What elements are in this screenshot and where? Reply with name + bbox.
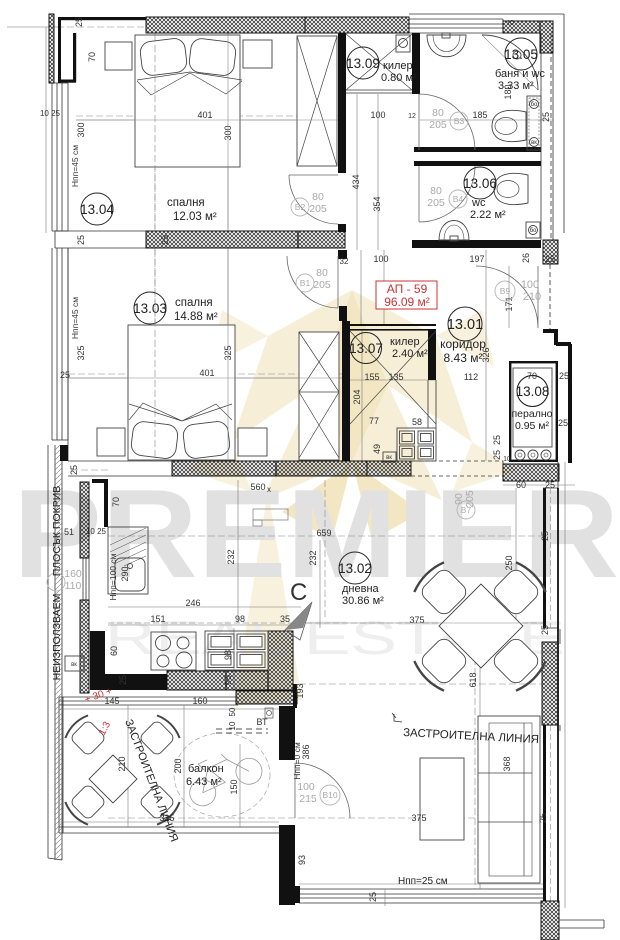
svg-text:килер: килер [383, 60, 413, 72]
svg-text:171: 171 [504, 296, 514, 311]
svg-text:160: 160 [192, 696, 207, 706]
svg-text:325: 325 [76, 345, 86, 360]
svg-text:25: 25 [492, 450, 502, 460]
svg-text:килер: килер [390, 336, 420, 348]
svg-text:375: 375 [411, 813, 426, 823]
svg-text:58: 58 [412, 417, 422, 427]
svg-text:13.07: 13.07 [349, 341, 383, 356]
svg-text:60: 60 [109, 646, 119, 656]
svg-text:B1: B1 [300, 278, 311, 288]
svg-text:25: 25 [76, 235, 86, 245]
svg-text:151: 151 [150, 614, 165, 624]
svg-text:13.08: 13.08 [516, 384, 550, 399]
svg-text:401: 401 [197, 110, 212, 120]
svg-text:Нпп=0 см: Нпп=0 см [292, 742, 302, 780]
svg-text:32: 32 [340, 257, 349, 266]
svg-text:НЕИЗПОЛЗВАЕМ: НЕИЗПОЛЗВАЕМ [51, 594, 63, 681]
svg-text:25: 25 [160, 235, 170, 245]
svg-text:10 25: 10 25 [40, 109, 61, 118]
svg-text:балкон: балкон [188, 763, 224, 775]
svg-text:13.06: 13.06 [463, 176, 497, 191]
svg-text:13.09: 13.09 [346, 56, 380, 71]
svg-text:25: 25 [118, 675, 128, 685]
svg-text:98: 98 [223, 650, 233, 660]
svg-text:Нпп=100 см: Нпп=100 см [108, 553, 118, 600]
svg-text:спалня: спалня [175, 297, 213, 309]
svg-text:185: 185 [472, 110, 487, 120]
svg-text:B10: B10 [322, 790, 337, 800]
svg-text:25: 25 [540, 625, 550, 635]
svg-text:13.04: 13.04 [80, 202, 114, 217]
svg-text:215: 215 [299, 793, 317, 805]
svg-text:дневна: дневна [342, 583, 380, 595]
svg-text:B7: B7 [461, 505, 472, 515]
svg-text:12.03 м²: 12.03 м² [173, 211, 217, 223]
svg-text:30.86 м²: 30.86 м² [342, 595, 384, 607]
svg-text:110: 110 [65, 580, 82, 592]
svg-text:326: 326 [481, 347, 491, 362]
svg-text:10 25: 10 25 [86, 527, 107, 536]
svg-text:60: 60 [516, 480, 526, 490]
svg-text:205: 205 [427, 197, 445, 209]
svg-text:25: 25 [541, 112, 551, 122]
svg-text:13.02: 13.02 [338, 561, 372, 576]
svg-text:368: 368 [502, 756, 512, 771]
svg-text:ВТ: ВТ [257, 717, 268, 727]
svg-text:B3: B3 [454, 116, 465, 126]
svg-text:Нпп=45 см: Нпп=45 см [70, 145, 80, 187]
svg-text:10: 10 [503, 456, 511, 463]
svg-text:100: 100 [521, 279, 539, 291]
svg-text:300: 300 [76, 122, 86, 137]
svg-text:93: 93 [297, 855, 307, 865]
svg-text:70: 70 [87, 52, 97, 62]
svg-text:375: 375 [409, 615, 424, 625]
svg-text:B4: B4 [453, 194, 464, 204]
svg-text:80: 80 [312, 191, 324, 203]
svg-text:205: 205 [309, 203, 327, 215]
svg-text:2.22 м²: 2.22 м² [470, 209, 506, 221]
svg-text:354: 354 [372, 196, 382, 211]
svg-text:205: 205 [429, 119, 447, 131]
svg-text:баня и wc: баня и wc [495, 68, 545, 80]
svg-text:25: 25 [368, 892, 378, 902]
svg-text:2.40 м²: 2.40 м² [392, 348, 428, 360]
svg-text:290: 290 [120, 566, 130, 581]
svg-text:wc: wc [471, 197, 486, 209]
svg-text:80: 80 [432, 107, 444, 119]
svg-text:618: 618 [468, 672, 478, 687]
svg-text:25: 25 [559, 371, 569, 381]
svg-text:12: 12 [408, 113, 416, 120]
svg-text:25: 25 [69, 465, 79, 475]
svg-text:бо: бо [530, 228, 537, 234]
svg-text:100: 100 [297, 781, 315, 793]
svg-text:659: 659 [316, 528, 331, 538]
svg-text:560: 560 [250, 482, 265, 492]
svg-text:232: 232 [308, 550, 318, 565]
svg-text:100: 100 [373, 254, 388, 264]
svg-text:35: 35 [280, 614, 290, 624]
svg-text:перално: перално [512, 408, 553, 420]
svg-text:С: С [290, 579, 307, 606]
svg-text:25: 25 [492, 435, 502, 445]
svg-text:26: 26 [521, 253, 531, 263]
svg-text:25: 25 [558, 418, 568, 428]
svg-text:80: 80 [430, 185, 442, 197]
svg-text:25: 25 [540, 531, 550, 541]
svg-text:112: 112 [464, 372, 478, 382]
svg-text:155: 155 [364, 372, 379, 382]
svg-text:250: 250 [504, 555, 514, 570]
svg-text:13.05: 13.05 [504, 47, 538, 62]
svg-text:0.80 м²: 0.80 м² [381, 72, 417, 84]
svg-text:197: 197 [469, 254, 484, 264]
svg-text:коридор: коридор [440, 337, 486, 351]
svg-text:14.88 м²: 14.88 м² [174, 311, 218, 323]
svg-text:98: 98 [235, 614, 245, 624]
svg-text:204: 204 [352, 389, 362, 404]
svg-text:8.43 м²: 8.43 м² [444, 351, 483, 365]
svg-text:193: 193 [295, 683, 305, 698]
svg-text:Нпп=45 см: Нпп=45 см [70, 297, 80, 339]
svg-text:13.01: 13.01 [447, 317, 483, 333]
svg-text:51: 51 [64, 527, 74, 537]
svg-text:спалня: спалня [167, 197, 205, 209]
svg-text:160: 160 [64, 568, 82, 580]
svg-text:вк: вк [531, 140, 537, 146]
svg-text:6.43 м²: 6.43 м² [186, 776, 222, 788]
svg-text:49: 49 [372, 444, 382, 454]
svg-text:25: 25 [60, 370, 70, 380]
svg-text:13.03: 13.03 [133, 301, 167, 316]
svg-text:232: 232 [226, 549, 236, 564]
svg-text:бо: бо [531, 102, 538, 108]
svg-text:x: x [267, 485, 271, 494]
svg-text:180: 180 [503, 84, 513, 99]
svg-text:70: 70 [527, 371, 537, 381]
svg-text:25: 25 [545, 254, 555, 264]
svg-text:246: 246 [185, 598, 200, 608]
svg-text:70: 70 [111, 497, 121, 507]
svg-text:210: 210 [117, 756, 127, 771]
svg-text:B9: B9 [500, 286, 511, 296]
svg-text:25: 25 [538, 813, 548, 823]
svg-text:200: 200 [173, 758, 183, 773]
svg-text:25: 25 [74, 17, 84, 27]
svg-text:АП - 59: АП - 59 [387, 282, 428, 296]
svg-text:210: 210 [523, 291, 541, 303]
svg-text:135: 135 [388, 372, 403, 382]
svg-text:50: 50 [228, 707, 237, 716]
svg-text:95: 95 [223, 675, 233, 685]
svg-text:386: 386 [301, 744, 311, 759]
svg-text:вк: вк [71, 662, 77, 668]
svg-text:80: 80 [316, 267, 328, 279]
svg-text:401: 401 [199, 368, 214, 378]
svg-text:150: 150 [229, 779, 239, 794]
svg-text:77: 77 [369, 416, 379, 426]
svg-text:10: 10 [506, 20, 514, 27]
svg-text:B2: B2 [295, 202, 306, 212]
svg-text:Нпп=25 см: Нпп=25 см [398, 876, 448, 887]
svg-text:вк: вк [386, 455, 392, 461]
svg-text:100: 100 [370, 110, 385, 120]
svg-text:25: 25 [545, 480, 555, 490]
svg-text:ПЛОСЪК ПОКРИВ: ПЛОСЪК ПОКРИВ [51, 486, 63, 577]
svg-text:434: 434 [351, 174, 361, 189]
svg-text:205: 205 [313, 279, 331, 291]
svg-text:0.95 м²: 0.95 м² [515, 420, 550, 432]
svg-text:96.09 м²: 96.09 м² [384, 295, 430, 309]
